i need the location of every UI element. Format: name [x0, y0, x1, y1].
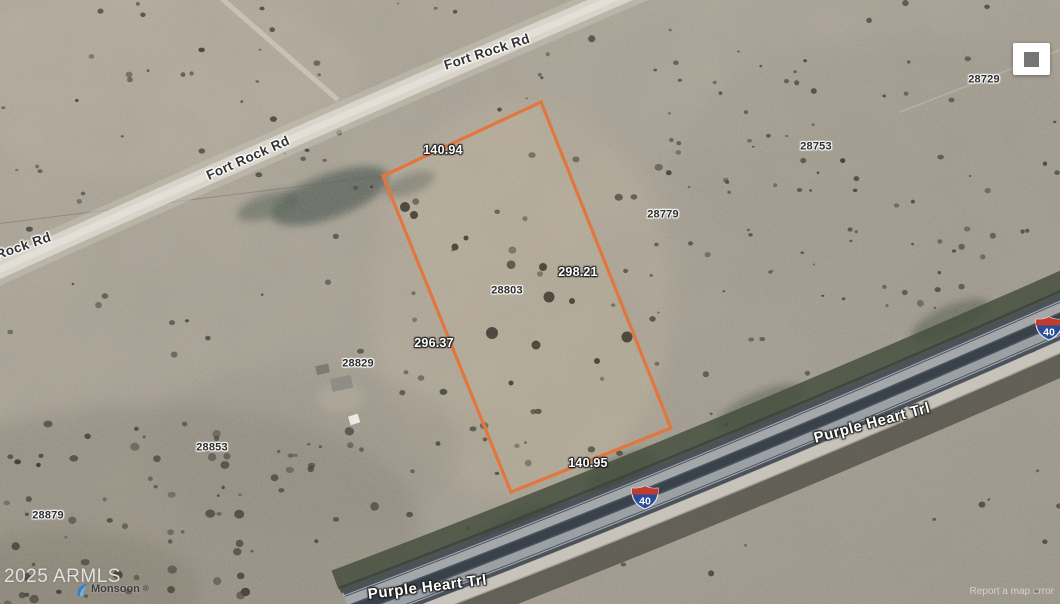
dimension-label-top: 140.94	[423, 144, 462, 157]
lot-number-label: 28803	[491, 286, 523, 297]
report-map-error-link[interactable]: Report a map error	[970, 586, 1054, 597]
map-style-toggle-button[interactable]	[1013, 43, 1050, 75]
lot-number-label: 28729	[968, 75, 1000, 86]
map-layer-icon	[1024, 52, 1039, 67]
lot-number-label: 28829	[342, 359, 374, 370]
svg-text:40: 40	[639, 496, 651, 508]
dimension-label-bottom: 140.95	[568, 457, 607, 470]
svg-text:40: 40	[1043, 327, 1055, 339]
monsoon-attribution: Monsoon ®	[76, 583, 149, 597]
satellite-map-viewport[interactable]: 40 40 Fort Rock Rd Fort Rock Rd Fort Roc…	[0, 0, 1060, 604]
lot-number-label: 28753	[800, 142, 832, 153]
dimension-label-right: 298.21	[558, 266, 597, 279]
aerial-imagery: 40 40	[0, 0, 1060, 604]
lot-number-label: 28779	[647, 210, 679, 221]
lot-number-label: 28879	[32, 511, 64, 522]
registered-trademark: ®	[143, 584, 149, 593]
dimension-label-left: 296.37	[414, 337, 453, 350]
monsoon-logo-icon	[76, 583, 89, 597]
lot-number-label: 28853	[196, 443, 228, 454]
monsoon-label: Monsoon	[91, 583, 140, 595]
